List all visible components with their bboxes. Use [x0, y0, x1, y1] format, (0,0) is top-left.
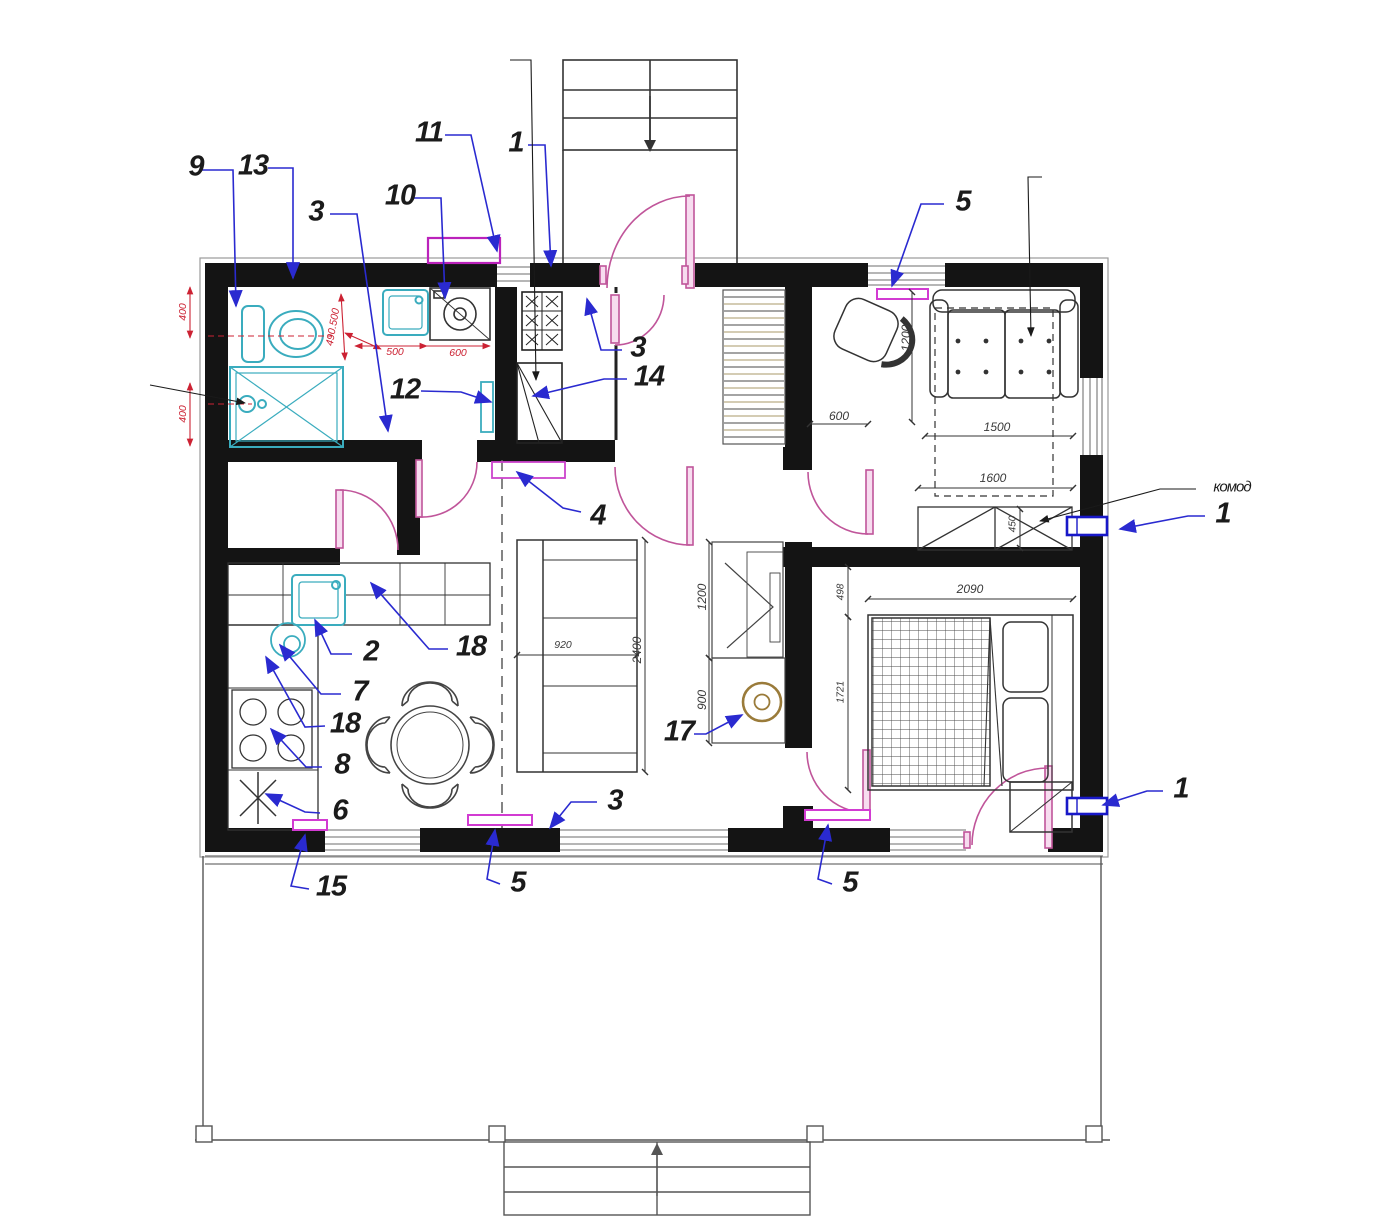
- wardrobe-niche: [712, 542, 785, 743]
- callout-dresser: комод: [1213, 479, 1250, 496]
- dining-set: [366, 682, 494, 808]
- callout-12: 12: [390, 374, 420, 407]
- callout-8: 8: [334, 749, 349, 782]
- callout-3a: 3: [308, 196, 323, 229]
- callout-5c: 5: [842, 867, 857, 900]
- dim-2090: 2090: [957, 582, 984, 596]
- callout-2: 2: [363, 636, 378, 669]
- dim-600-office: 600: [829, 409, 849, 423]
- living-sofa: [517, 540, 637, 772]
- callout-1a: 1: [508, 127, 523, 160]
- callout-15: 15: [316, 871, 346, 904]
- terrace: [195, 856, 1110, 1215]
- dim-450: 450: [1008, 516, 1019, 533]
- dim-red-500: 500: [386, 346, 404, 358]
- dim-498: 498: [836, 584, 847, 601]
- callout-3c: 3: [607, 785, 622, 818]
- kettle: [271, 623, 305, 657]
- callout-7: 7: [352, 676, 367, 709]
- dim-1200-office: 1200: [899, 325, 913, 352]
- callout-10: 10: [385, 180, 415, 213]
- bedroom-furniture: [868, 615, 1073, 832]
- callout-14: 14: [634, 361, 664, 394]
- dim-1721: 1721: [836, 681, 847, 703]
- boiler-equipment: [517, 292, 562, 443]
- office-room: [829, 290, 1078, 496]
- dim-2400: 2400: [630, 637, 644, 664]
- dim-1600: 1600: [980, 471, 1007, 485]
- dim-920: 920: [554, 639, 572, 651]
- porch-steps: [563, 60, 737, 263]
- callout-leaders: [202, 135, 1205, 889]
- dim-red-600: 600: [449, 347, 467, 359]
- callout-17: 17: [664, 716, 694, 749]
- callout-11: 11: [415, 117, 443, 150]
- dim-red-400b: 400: [177, 405, 189, 423]
- dim-red-400a: 400: [177, 303, 189, 321]
- callout-1b: 1: [1215, 498, 1230, 531]
- callout-13: 13: [238, 150, 268, 183]
- callout-6: 6: [332, 795, 347, 828]
- callout-5b: 5: [510, 867, 525, 900]
- washing-machine: [430, 288, 490, 340]
- callout-18b: 18: [330, 708, 360, 741]
- callout-5a: 5: [955, 186, 970, 219]
- callout-18a: 18: [456, 631, 486, 664]
- callout-9: 9: [188, 151, 203, 184]
- dim-1200-niche: 1200: [695, 584, 709, 611]
- staircase: [723, 290, 785, 444]
- callout-3b: 3: [630, 332, 645, 365]
- kitchen-sink: [292, 575, 345, 625]
- dresser-row: [918, 507, 1072, 550]
- floorplan-linework: [0, 0, 1394, 1231]
- dim-900: 900: [695, 690, 709, 710]
- callout-1c: 1: [1173, 773, 1188, 806]
- floor-plan: 9 13 3 10 11 1 5 12 14 3 4 2 18 7 18 8 6…: [0, 0, 1394, 1231]
- dim-1500: 1500: [984, 420, 1011, 434]
- callout-4: 4: [590, 500, 605, 533]
- round-water-heater: [743, 683, 781, 721]
